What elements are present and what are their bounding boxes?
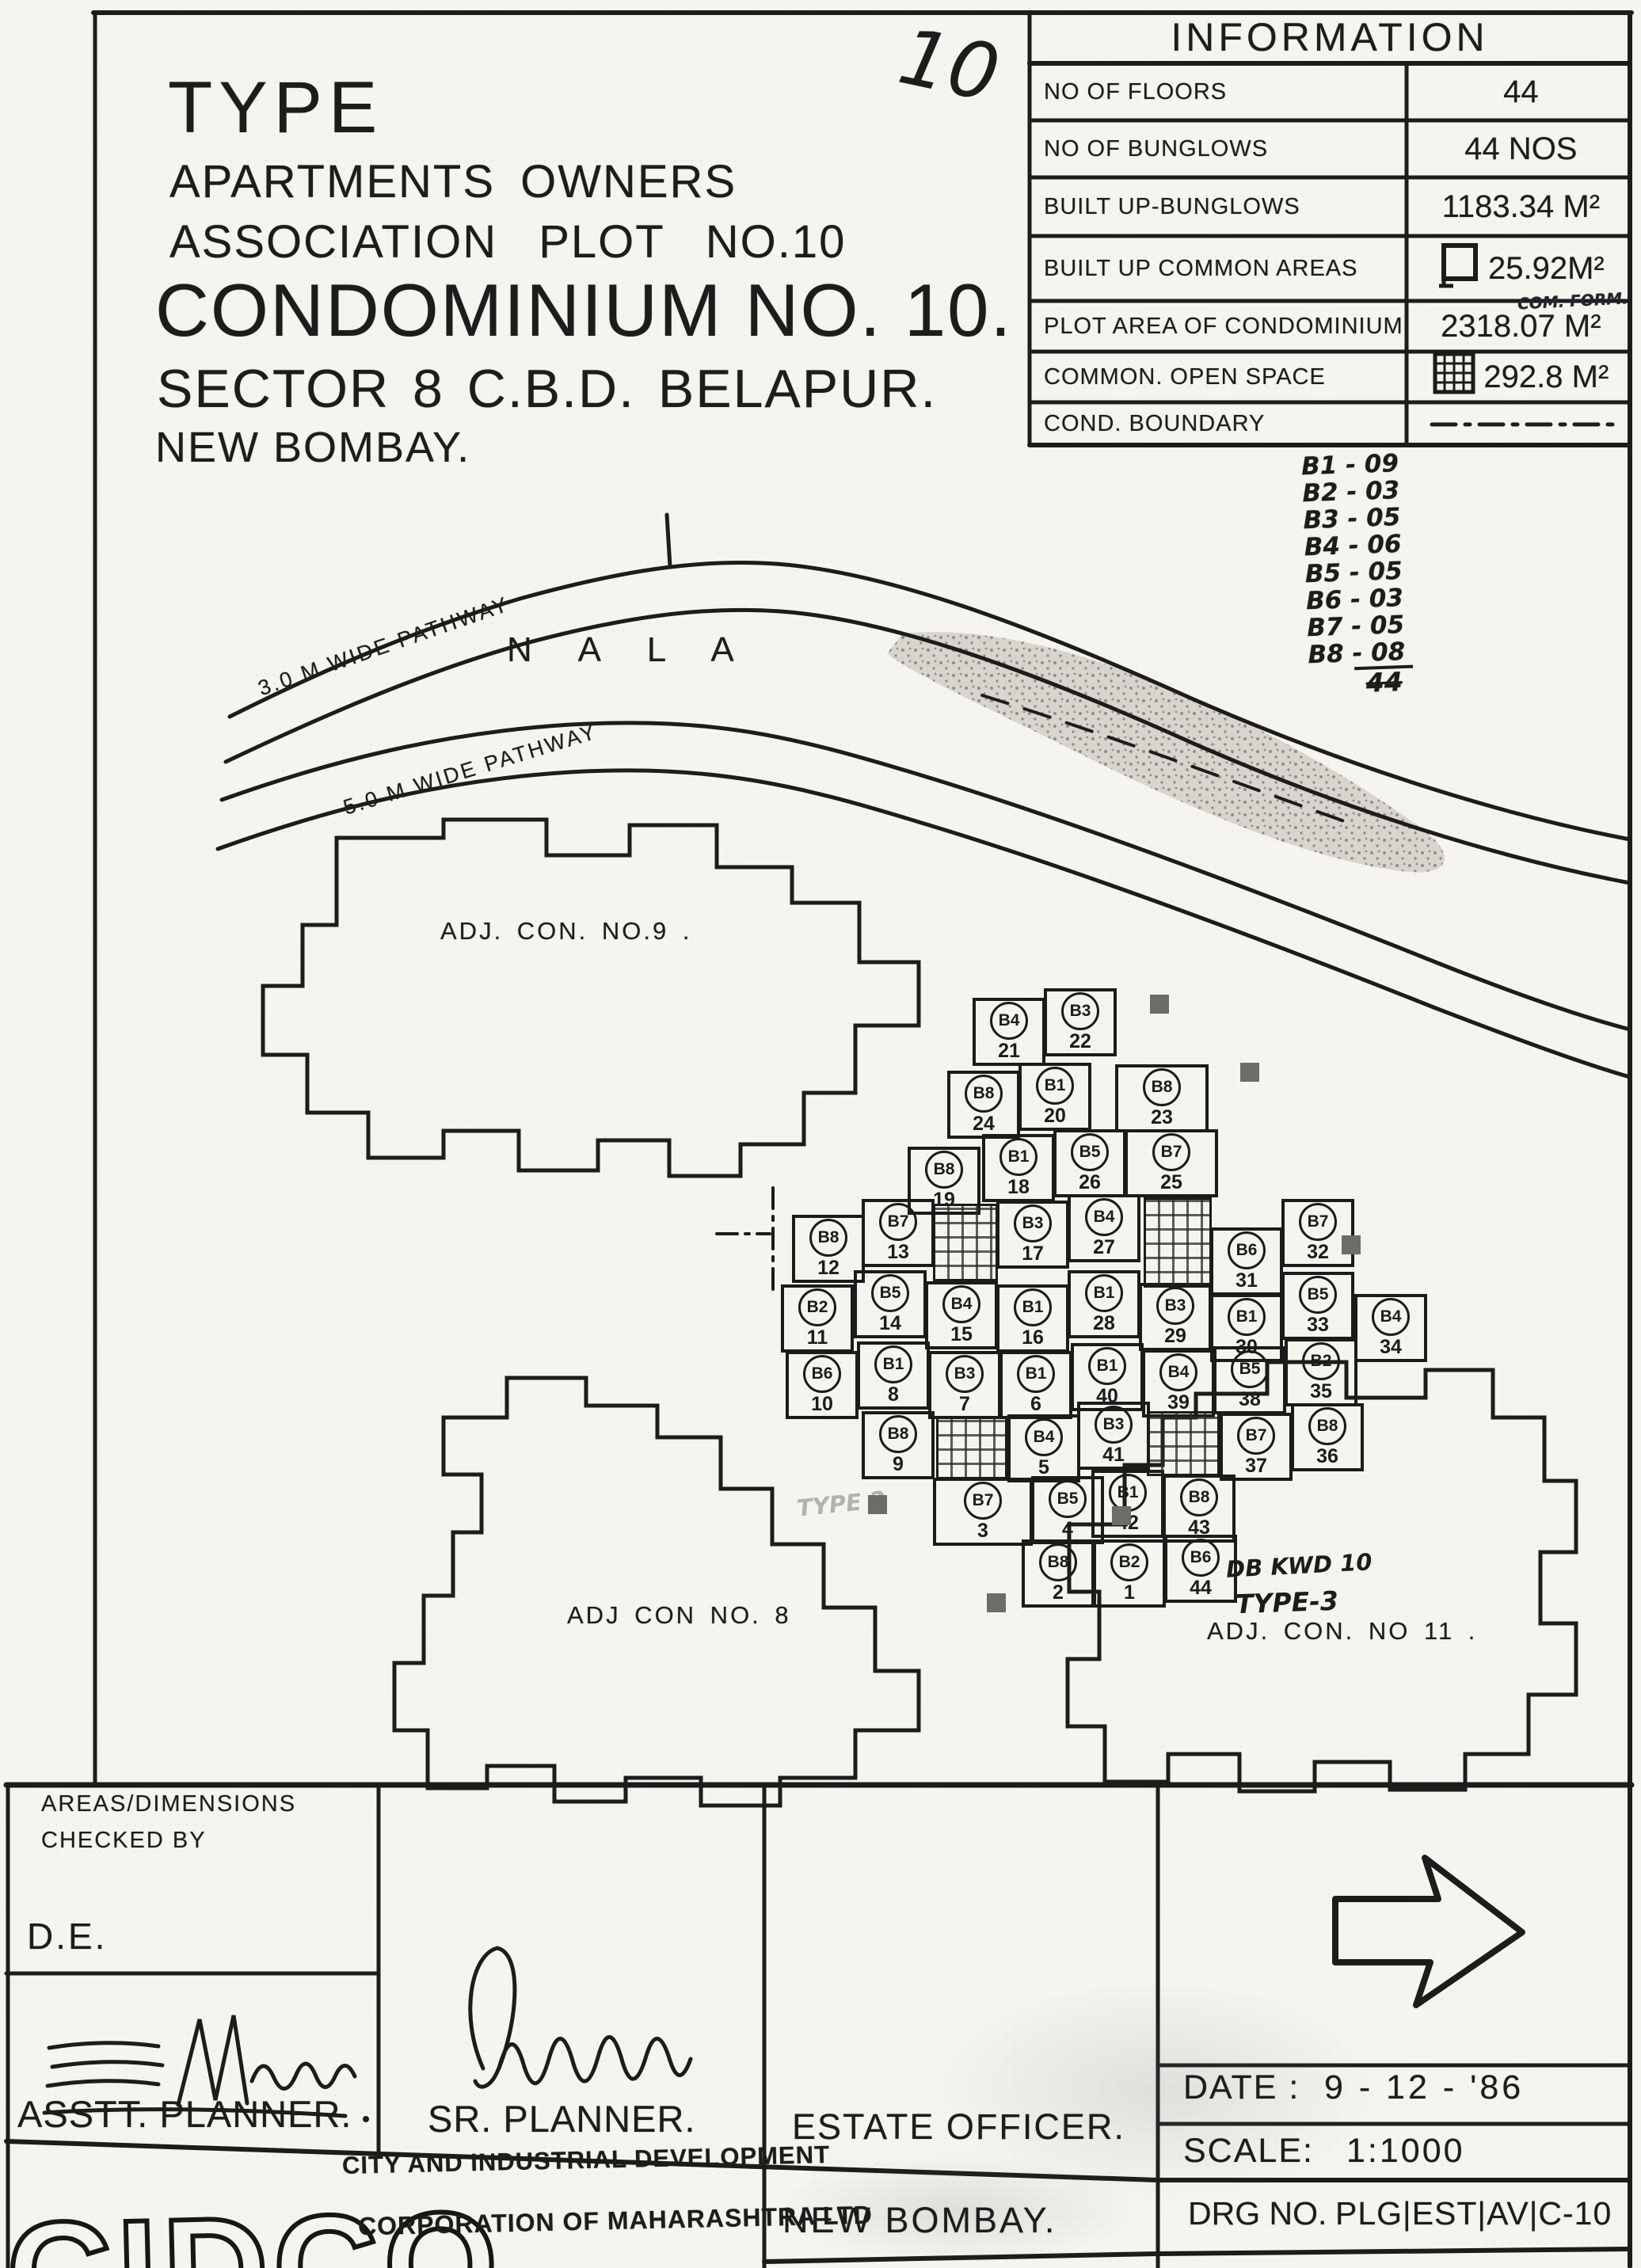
unit-number: 26 [1079,1171,1101,1194]
unit-type-circle: B8 [1180,1478,1218,1516]
unit-type-circle: B5 [1071,1133,1109,1171]
unit-type-circle: B8 [925,1151,963,1189]
title-apartments-owners: APARTMENTS OWNERS [169,155,737,208]
title-sector: SECTOR 8 C.B.D. BELAPUR. [157,358,937,420]
unit-type-circle: B5 [1299,1276,1337,1314]
unit-type-circle: B1 [1085,1274,1123,1312]
unit-type-circle: B2 [798,1288,836,1326]
unit-type-circle: B4 [990,1002,1028,1040]
unit-type-circle: B3 [1156,1287,1194,1325]
scale-value: 1:1000 [1346,2132,1465,2171]
info-row: BUILT UP COMMON AREAS25.92M²COM. FORM. [1030,236,1630,301]
adjacent-condo-11-label: ADJ. CON. NO 11 . [1207,1617,1477,1646]
unit-number: 23 [1151,1106,1173,1129]
north-arrow-icon [1335,1858,1522,2005]
unit-number: 15 [950,1323,973,1346]
info-row-value: 2318.07 M² [1412,301,1630,352]
checked-by-line2: CHECKED BY [41,1828,207,1854]
info-row-value: 292.8 M² [1412,352,1630,402]
unit-type-circle: B5 [1231,1350,1269,1388]
title-type: TYPE [168,67,383,150]
info-value-text: 292.8 M² [1483,360,1609,395]
drawing-number-label: DRG NO. [1188,2195,1327,2232]
bungalow-unit-37: B737 [1220,1413,1293,1481]
tally-line: B8 - 08 [1308,638,1413,669]
bungalow-unit-38: B538 [1213,1346,1286,1414]
info-row: COND. BOUNDARY [1030,402,1630,445]
unit-type-circle: B3 [946,1355,984,1393]
unit-number: 12 [817,1257,840,1280]
bungalow-unit-31: B631 [1210,1227,1283,1296]
unit-number: 29 [1164,1325,1186,1348]
unit-number: 28 [1093,1312,1115,1335]
bungalow-unit-28: B128 [1068,1270,1140,1338]
unit-type-circle: B3 [1061,992,1099,1030]
info-row: COMMON. OPEN SPACE292.8 M² [1030,352,1630,402]
unit-type-circle: B4 [1159,1353,1197,1391]
bungalow-unit-2: B82 [1022,1539,1095,1608]
bungalow-unit-16: B116 [996,1284,1069,1353]
common-porch-block [1342,1235,1361,1254]
drawing-sheet: CIDCO TYPE APARTMENTS OWNERS ASSOCIATION… [0,0,1641,2268]
info-row-label: BUILT UP-BUNGLOWS [1030,177,1412,236]
bungalow-unit-26: B526 [1053,1129,1126,1197]
unit-type-circle: B8 [1143,1068,1181,1106]
unit-number: 11 [807,1326,828,1349]
unit-number: 37 [1245,1455,1267,1478]
unit-type-circle: B8 [965,1075,1003,1113]
unit-number: 33 [1307,1314,1329,1337]
title-association-plot: ASSOCIATION PLOT NO.10 [169,215,846,268]
unit-type-circle: B4 [1025,1418,1063,1456]
bungalow-unit-8: B18 [857,1341,930,1410]
unit-type-circle: B8 [809,1219,847,1257]
bungalow-unit-3: B73 [933,1478,1033,1546]
estate-officer-label: ESTATE OFFICER. [792,2106,1125,2148]
hatched-open-space [933,1204,998,1281]
bungalow-unit-6: B16 [999,1351,1072,1419]
info-row-label: NO OF FLOORS [1030,63,1412,120]
bungalow-unit-42: B142 [1091,1470,1164,1538]
bungalow-unit-22: B322 [1044,988,1117,1056]
information-table: INFORMATION NO OF FLOORS44NO OF BUNGLOWS… [1030,13,1630,445]
unit-type-circle: B7 [1152,1133,1190,1171]
adjacent-condo-9-outline [263,820,919,1176]
unit-number: 36 [1316,1445,1338,1468]
unit-type-circle: B4 [1085,1198,1123,1236]
info-value-text: 44 [1503,74,1539,110]
unit-type-circle: B1 [874,1345,912,1383]
unit-type-circle: B3 [1095,1406,1133,1444]
nala-label: N A L A [507,630,753,670]
de-label: D.E. [27,1915,107,1958]
unit-type-circle: B2 [1302,1342,1340,1380]
porch-legend-icon [1437,241,1480,296]
unit-number: 9 [893,1453,904,1476]
unit-type-circle: B8 [1039,1543,1077,1581]
unit-number: 34 [1380,1336,1402,1359]
unit-number: 10 [811,1393,833,1416]
info-row: BUILT UP-BUNGLOWS1183.34 M² [1030,177,1630,236]
unit-number: 3 [977,1520,988,1543]
unit-number: 4 [1062,1518,1073,1541]
info-row-value: 1183.34 M² [1412,177,1630,236]
bungalow-unit-15: B415 [925,1281,998,1349]
bungalow-unit-21: B421 [973,998,1045,1066]
unit-number: 16 [1022,1326,1044,1349]
info-row: NO OF FLOORS44 [1030,63,1630,120]
unit-type-circle: B2 [1110,1543,1148,1581]
bungalow-unit-43: B843 [1163,1475,1236,1543]
bungalow-unit-25: B725 [1125,1129,1218,1197]
unit-number: 35 [1310,1380,1332,1403]
bungalow-unit-33: B533 [1281,1272,1354,1340]
info-row-label: COND. BOUNDARY [1030,402,1412,445]
title-condominium: CONDOMINIUM NO. 10. [155,268,1013,353]
bungalow-unit-17: B317 [996,1201,1069,1269]
sr-planner-label: SR. PLANNER. [428,2097,695,2141]
bungalow-unit-29: B329 [1139,1283,1212,1351]
unit-type-circle: B1 [1228,1298,1266,1336]
hatched-open-space [1144,1197,1212,1288]
unit-type-circle: B4 [942,1285,980,1323]
bungalow-unit-10: B610 [786,1351,859,1419]
bungalow-unit-11: B211 [781,1284,854,1353]
unit-number: 44 [1190,1577,1212,1600]
unit-type-circle: B1 [999,1138,1038,1176]
common-porch-block [1240,1063,1259,1082]
bungalow-unit-36: B836 [1291,1403,1364,1471]
unit-number: 25 [1160,1171,1182,1194]
bungalow-unit-24: B824 [947,1071,1020,1139]
info-row-value [1412,402,1630,445]
info-row-value: 44 NOS [1412,120,1630,177]
checked-by-line1: AREAS/DIMENSIONS [41,1791,296,1817]
hatched-open-space [936,1416,1007,1479]
bungalow-unit-18: B118 [982,1134,1055,1202]
unit-type-circle: B6 [1228,1231,1266,1269]
hatched-open-space [1147,1411,1220,1476]
unit-type-circle: B8 [1308,1407,1346,1445]
unit-number: 31 [1236,1269,1258,1292]
unit-type-circle: B5 [871,1274,909,1312]
unit-number: 14 [879,1312,901,1335]
bungalow-unit-41: B341 [1077,1402,1150,1470]
unit-number: 18 [1007,1176,1030,1199]
nala-and-pathway-lines [218,515,1630,1077]
adjacent-condo-8-outline [394,1378,919,1806]
info-value-text: 25.92M² [1488,251,1605,287]
unit-type-circle: B1 [1088,1347,1126,1385]
bungalow-unit-27: B427 [1068,1194,1140,1262]
bungalow-unit-39: B439 [1142,1349,1215,1417]
tally-total: 44 [1354,665,1414,698]
info-row-label: BUILT UP COMMON AREAS [1030,236,1412,301]
adjacent-condo-9-label: ADJ. CON. NO.9 . [440,917,691,946]
information-table-title: INFORMATION [1030,13,1630,63]
common-porch-block [1112,1506,1131,1525]
drawing-number-value: PLG|EST|AV|C-10 [1335,2195,1612,2232]
bungalow-unit-34: B434 [1354,1294,1427,1362]
info-row: PLOT AREA OF CONDOMINIUM2318.07 M² [1030,301,1630,352]
unit-type-circle: B3 [1014,1204,1052,1242]
unit-number: 1 [1124,1581,1135,1604]
common-porch-block [1150,995,1169,1014]
condo-boundary-line [717,1188,773,1289]
unit-type-circle: B4 [1372,1298,1410,1336]
bungalow-unit-44: B644 [1164,1535,1237,1603]
unit-type-circle: B1 [1036,1067,1074,1105]
unit-number: 5 [1038,1456,1049,1479]
unit-number: 27 [1093,1236,1115,1259]
unit-number: 13 [887,1241,909,1264]
bungalow-unit-20: B120 [1018,1063,1091,1131]
unit-type-circle: B7 [1237,1417,1275,1455]
bungalow-unit-14: B514 [854,1270,927,1338]
unit-number: 24 [973,1113,995,1136]
unit-tally-note: B1 - 09B2 - 03B3 - 05B4 - 06B5 - 05B6 - … [1301,450,1414,699]
unit-type-circle: B1 [1014,1288,1052,1326]
bungalow-unit-5: B45 [1007,1414,1080,1482]
info-row-label: COMMON. OPEN SPACE [1030,352,1412,402]
title-new-bombay: NEW BOMBAY. [155,423,470,472]
date-value: 9 - 12 - '86 [1324,2068,1524,2107]
info-value-text: 1183.34 M² [1442,189,1600,225]
asstt-planner-label: ASSTT. PLANNER. [17,2092,352,2136]
unit-type-circle: B8 [879,1415,917,1453]
unit-type-circle: B6 [1182,1539,1220,1577]
unit-number: 17 [1022,1242,1044,1265]
info-row: NO OF BUNGLOWS44 NOS [1030,120,1630,177]
bungalow-unit-32: B732 [1281,1199,1354,1267]
unit-number: 22 [1069,1030,1091,1053]
adjacent-condo-8-label: ADJ CON NO. 8 [567,1601,791,1630]
unit-type-circle: B5 [1049,1480,1087,1518]
handwritten-type3-note: TYPE-3 [1235,1585,1338,1620]
unit-type-circle: B1 [1017,1355,1055,1393]
unit-type-circle: B7 [964,1482,1002,1520]
unit-number: 7 [959,1393,970,1416]
bungalow-unit-7: B37 [928,1351,1001,1419]
common-porch-block [987,1593,1006,1612]
sr-planner-signature [470,1948,691,2087]
unit-type-circle: B7 [1299,1203,1337,1241]
unit-number: 6 [1030,1393,1041,1416]
bungalow-unit-23: B823 [1115,1064,1209,1132]
unit-number: 21 [998,1040,1020,1063]
info-row-value: 44 [1412,63,1630,120]
info-value-text: 44 NOS [1464,131,1577,167]
hatch-legend-icon [1433,352,1475,402]
unit-number: 38 [1239,1388,1261,1411]
bungalow-unit-35: B235 [1285,1338,1357,1406]
unit-number: 41 [1102,1444,1125,1467]
date-label: DATE : [1183,2068,1300,2107]
common-porch-block [868,1495,887,1514]
info-value-text: 2318.07 M² [1441,309,1601,344]
unit-number: 20 [1044,1105,1066,1128]
bungalow-unit-9: B89 [862,1411,935,1479]
info-row-label: PLOT AREA OF CONDOMINIUM [1030,301,1412,352]
scale-label: SCALE: [1183,2132,1314,2171]
info-row-label: NO OF BUNGLOWS [1030,120,1412,177]
unit-number: 32 [1307,1241,1329,1264]
info-row-value: 25.92M²COM. FORM. [1412,236,1630,301]
bungalow-unit-1: B21 [1093,1539,1166,1608]
unit-number: 2 [1053,1581,1064,1604]
unit-number: 8 [888,1383,899,1406]
unit-type-circle: B6 [803,1355,841,1393]
